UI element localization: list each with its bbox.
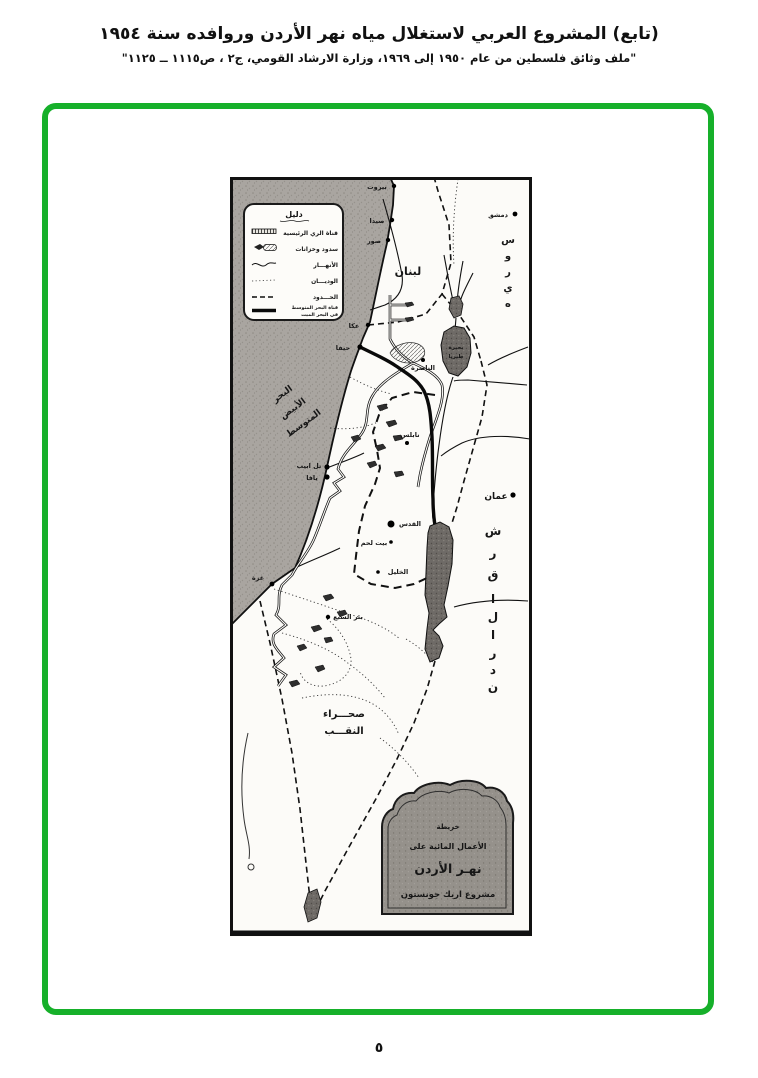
map-scan: بيروت صيدا صور دمشق عكا حيفا الناصرة ناب… [230, 177, 532, 937]
transjordan-letter: ق [488, 568, 499, 582]
city-label-beersheba: بئر السبع [333, 613, 363, 621]
city-label-tel-aviv: تل ابيب [297, 462, 322, 470]
city-label-tyre: صور [366, 237, 381, 245]
city-dot-tyre [386, 238, 390, 242]
city-dot-beersheba [326, 615, 330, 619]
legend-label-rivers: الأنهـــار [312, 261, 338, 269]
negev-label-line: النقـــب [324, 726, 363, 737]
negev-label-line: صحـــراء [323, 709, 365, 720]
city-dot-tel-aviv [324, 464, 329, 469]
city-label-hebron: الخليل [388, 568, 408, 576]
transjordan-letter: ش [485, 524, 502, 538]
city-dot-hebron [376, 570, 380, 574]
city-label-haifa: حيفا [336, 344, 351, 352]
region-label-lebanon: لبنان [395, 265, 422, 278]
page-header: (تابع) المشروع العربي لاستغلال مياه نهر … [0, 24, 758, 65]
transjordan-letter: د [490, 663, 496, 677]
map-frame: بيروت صيدا صور دمشق عكا حيفا الناصرة ناب… [42, 103, 714, 1015]
transjordan-letter: ا [491, 592, 495, 606]
city-label-beirut: بيروت [367, 183, 387, 191]
palestine-water-map: بيروت صيدا صور دمشق عكا حيفا الناصرة ناب… [230, 177, 532, 937]
syria-letter: ي [503, 283, 512, 294]
legend-label-main-canal: قناة الري الرئيسية [283, 230, 338, 237]
city-label-jaffa: يافا [306, 474, 318, 482]
legend-box: دليل قناة الري الرئيسية سدود وخزانات الأ… [244, 204, 343, 320]
city-dot-beirut [392, 184, 396, 188]
city-dot-haifa [357, 344, 362, 349]
city-dot-nablus [405, 441, 409, 445]
city-dot-acre [366, 323, 370, 327]
city-label-amman: عمان [484, 492, 507, 502]
document-title: (تابع) المشروع العربي لاستغلال مياه نهر … [0, 24, 758, 44]
syria-letter: ر [504, 267, 511, 278]
city-dot-nazareth [421, 358, 425, 362]
cartouche-line-4: مشروع اريك جونستون [401, 890, 495, 900]
cartouche-line-3: نهـر الأردن [414, 861, 481, 876]
syria-letter: و [504, 251, 511, 262]
cartouche-line-2: الأعمال المائية على [409, 841, 486, 851]
city-dot-jaffa [324, 474, 329, 479]
city-dot-amman [510, 492, 515, 497]
transjordan-letter: ل [488, 610, 498, 624]
city-dot-damascus [513, 212, 518, 217]
legend-symbol-main-canal [252, 229, 276, 234]
legend-label-wadis: الوديـــان [311, 278, 338, 285]
city-label-nablus: نابلس [400, 431, 419, 439]
transjordan-letter: ن [488, 680, 498, 694]
city-label-gaza: غزة [252, 574, 264, 582]
legend-symbol-reservoir [264, 245, 277, 251]
tiberias-label-line: بحيرة [449, 345, 464, 351]
cartouche-line-1: خريطة [436, 823, 459, 831]
legend-label-med-dead-1: قناة البحر المتوسط [292, 305, 338, 311]
transjordan-letter: ر [489, 646, 497, 660]
transjordan-letter: ا [491, 628, 495, 642]
city-label-jerusalem: القدس [399, 520, 421, 528]
city-dot-sidon [390, 218, 394, 222]
legend-title: دليل [285, 210, 303, 219]
city-label-bethlehem: بيت لحم [361, 539, 387, 547]
city-label-damascus: دمشق [488, 211, 508, 219]
legend-label-med-dead-2: في البحر الميت [301, 312, 338, 318]
city-dot-jerusalem [388, 521, 395, 528]
legend-label-dams: سدود وخزانات [295, 246, 338, 253]
cartouche: خريطة الأعمال المائية على نهـر الأردن مش… [382, 781, 513, 914]
city-label-nazareth: الناصرة [411, 364, 435, 372]
page-number: ٥ [0, 1040, 758, 1056]
transjordan-letter: ر [489, 546, 497, 560]
city-label-acre: عكا [349, 322, 360, 330]
city-label-sidon: صيدا [370, 217, 385, 225]
syria-letter: س [501, 235, 515, 246]
syria-letter: ه [505, 299, 511, 310]
tiberias-label-line: طبريا [449, 354, 464, 360]
document-subtitle: "ملف وثائق فلسطين من عام ١٩٥٠ إلى ١٩٦٩، … [0, 51, 758, 65]
city-dot-bethlehem [389, 540, 393, 544]
city-dot-gaza [270, 582, 275, 587]
legend-label-borders: الحـــدود [313, 294, 338, 301]
